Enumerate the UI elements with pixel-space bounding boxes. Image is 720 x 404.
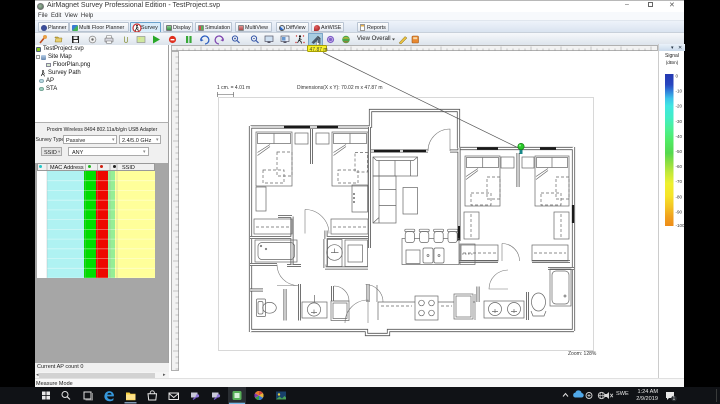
svg-text:-80: -80 — [676, 194, 683, 199]
svg-text:-70: -70 — [676, 179, 683, 184]
svg-text:-10: -10 — [676, 89, 683, 94]
svg-text:-100: -100 — [676, 223, 686, 228]
svg-text:-90: -90 — [676, 209, 683, 214]
svg-text:-30: -30 — [676, 119, 683, 124]
svg-text:-20: -20 — [676, 104, 683, 109]
svg-text:-40: -40 — [676, 134, 683, 139]
svg-text:0: 0 — [676, 74, 679, 79]
svg-text:-50: -50 — [676, 149, 683, 154]
svg-text:-60: -60 — [676, 164, 683, 169]
